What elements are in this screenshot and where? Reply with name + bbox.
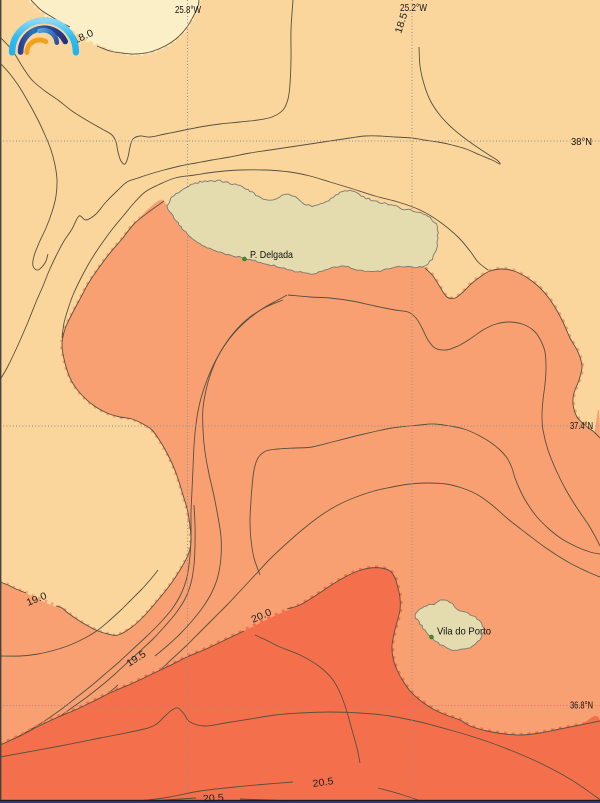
svg-text:P. Delgada: P. Delgada (250, 249, 293, 261)
svg-text:25.8°W: 25.8°W (175, 4, 201, 16)
svg-text:36.8°N: 36.8°N (570, 700, 593, 712)
svg-text:37.4°N: 37.4°N (570, 420, 593, 432)
svg-text:38°N: 38°N (571, 136, 592, 148)
svg-text:Vila do Porto: Vila do Porto (437, 626, 491, 638)
svg-text:25.2°W: 25.2°W (400, 2, 427, 14)
